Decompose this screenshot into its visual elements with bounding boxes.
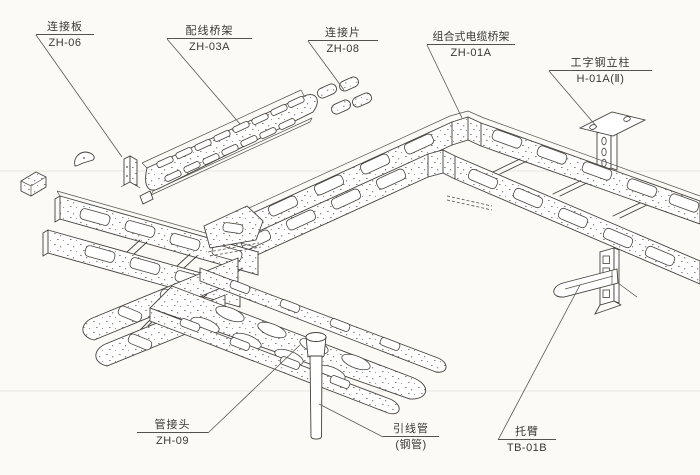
label-cantilever-arm-name: 托臂 <box>498 426 556 440</box>
bent-flap-piece <box>75 152 95 166</box>
leader-cantilever-arm <box>498 285 580 440</box>
label-connector-strip-name: 连接片 <box>308 27 378 41</box>
connector-strips-zh08 <box>316 75 373 115</box>
label-connector-plate-code: ZH-06 <box>36 35 94 50</box>
label-pipe-joint: 管接头 ZH-09 <box>137 419 208 448</box>
wiring-tray-zh03a <box>140 90 317 204</box>
label-cantilever-arm-code: TB-01B <box>498 440 556 455</box>
label-wiring-tray-name: 配线桥架 <box>167 25 252 39</box>
label-cantilever-arm: 托臂 TB-01B <box>498 426 556 455</box>
cantilever-arm-tb01b <box>554 269 637 297</box>
connector-plate-parts-zh06 <box>21 152 140 196</box>
diagram-canvas: 连接板 ZH-06 配线桥架 ZH-03A 连接片 ZH-08 组合式电缆桥架 … <box>0 0 700 475</box>
label-pipe-joint-name: 管接头 <box>137 419 208 433</box>
vertical-connector-plate <box>124 156 130 185</box>
lead-pipe <box>310 356 322 439</box>
leader-connector-plate <box>36 35 122 157</box>
label-wiring-tray-code: ZH-03A <box>167 39 252 54</box>
label-connector-strip: 连接片 ZH-08 <box>308 27 378 56</box>
label-i-beam-column-name: 工字钢立柱 <box>549 57 652 71</box>
label-lead-pipe-name: 引线管 <box>383 423 439 437</box>
label-connector-strip-code: ZH-08 <box>308 41 378 56</box>
label-connector-plate-name: 连接板 <box>36 21 94 35</box>
channel-piece <box>21 172 46 196</box>
tray-end-flap <box>140 191 153 204</box>
label-combined-cable-tray-code: ZH-01A <box>427 45 515 60</box>
label-connector-plate: 连接板 ZH-06 <box>36 21 94 50</box>
label-i-beam-column-code: H-01A(Ⅱ) <box>549 71 652 86</box>
label-i-beam-column: 工字钢立柱 H-01A(Ⅱ) <box>549 57 652 86</box>
label-lead-pipe: 引线管 (钢管) <box>383 423 439 452</box>
pipe-joint-zh09 <box>306 333 326 359</box>
label-wiring-tray: 配线桥架 ZH-03A <box>167 25 252 54</box>
label-combined-cable-tray: 组合式电缆桥架 ZH-01A <box>427 31 515 60</box>
label-combined-cable-tray-name: 组合式电缆桥架 <box>427 31 515 45</box>
label-pipe-joint-code: ZH-09 <box>137 433 208 448</box>
column-top-plate <box>580 112 645 136</box>
leader-lead-pipe <box>319 404 383 437</box>
label-lead-pipe-code: (钢管) <box>383 437 439 452</box>
